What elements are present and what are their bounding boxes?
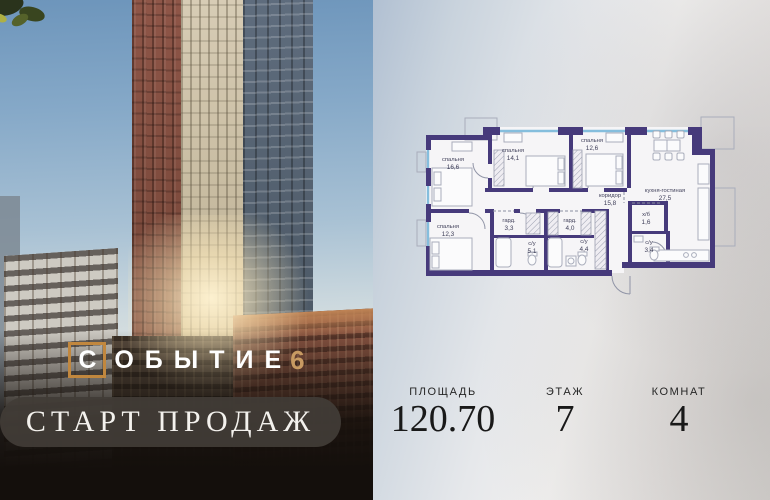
room-area: 27,5 — [659, 195, 672, 202]
room-label: спальня — [581, 138, 603, 144]
room-label: кухня-гостиная — [645, 188, 685, 194]
rooms-value: 4 — [614, 399, 744, 441]
tree-branch-icon — [0, 0, 80, 58]
sales-start-banner: СТАРТ ПРОДАЖ — [0, 397, 341, 447]
project-logo: С ОБЫТИЕ 6 — [0, 342, 373, 378]
room-area: 15,8 — [604, 200, 617, 207]
logo-first-letter: С — [78, 348, 96, 373]
room-area: 12,3 — [442, 231, 455, 238]
room-label: гард. — [563, 218, 577, 224]
rooms-label: КОМНАТ — [614, 386, 744, 398]
room-label: спальня — [437, 224, 459, 230]
apartment-panel: спальня 16,6 спальня 14,1 спальня 12,6 к… — [373, 0, 770, 500]
room-area: 1,6 — [642, 219, 651, 226]
room-label: с/у — [580, 239, 588, 245]
rooms-info: КОМНАТ 4 — [614, 386, 744, 441]
building-photo: С ОБЫТИЕ 6 СТАРТ ПРОДАЖ — [0, 0, 373, 500]
room-area: 14,1 — [507, 155, 520, 162]
floor-value: 7 — [500, 399, 630, 441]
room-area: 4,0 — [566, 225, 575, 232]
room-label: с/у — [645, 240, 653, 246]
room-area: 5,1 — [528, 248, 537, 255]
logo-text: ОБЫТИЕ — [114, 348, 292, 373]
room-area: 4,4 — [580, 246, 589, 253]
room-area: 12,6 — [586, 145, 599, 152]
floor-info: ЭТАЖ 7 — [500, 386, 630, 441]
area-value: 120.70 — [378, 399, 508, 441]
room-label: спальня — [502, 148, 524, 154]
room-label: гард. — [502, 218, 516, 224]
room-area: 16,6 — [447, 164, 460, 171]
area-info: ПЛОЩАДЬ 120.70 — [378, 386, 508, 441]
room-area: 3,4 — [645, 247, 654, 254]
room-label: с/у — [528, 241, 536, 247]
room-label: коридор — [599, 193, 621, 199]
floor-label: ЭТАЖ — [500, 386, 630, 398]
area-label: ПЛОЩАДЬ — [378, 386, 508, 398]
room-label: х/б — [642, 212, 651, 218]
logo-number: 6 — [290, 347, 304, 373]
floor-plan: спальня 16,6 спальня 14,1 спальня 12,6 к… — [414, 104, 746, 296]
floor-plan-container: спальня 16,6 спальня 14,1 спальня 12,6 к… — [414, 104, 746, 296]
room-area: 3,3 — [505, 225, 514, 232]
logo-letter-frame: С — [68, 342, 106, 378]
room-label: спальня — [442, 157, 464, 163]
sales-start-label: СТАРТ ПРОДАЖ — [26, 405, 315, 439]
